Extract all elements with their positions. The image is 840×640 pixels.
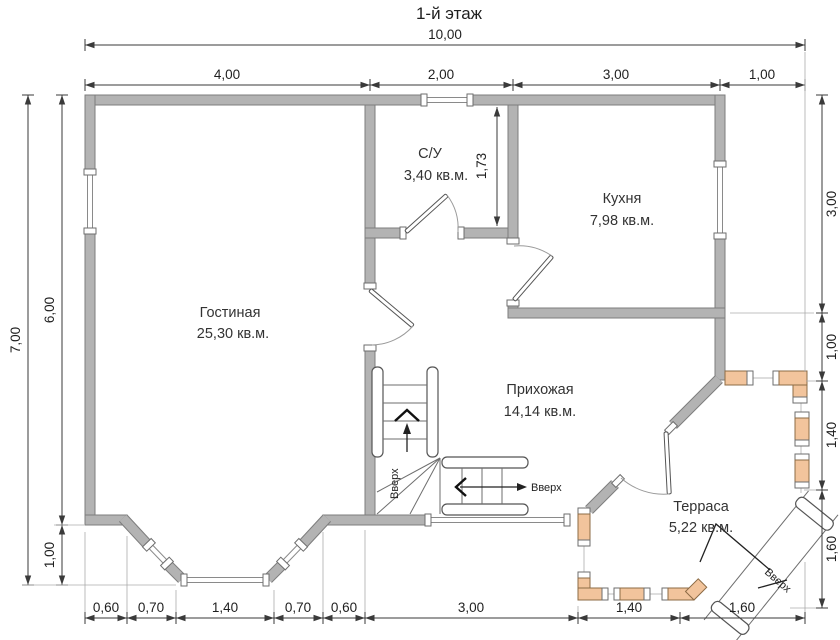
plan-title: 1-й этаж — [416, 4, 483, 23]
dim-bottom-2: 0,70 — [138, 600, 164, 615]
room-kitchen-name: Кухня — [603, 191, 642, 207]
dim-left-1: 6,00 — [42, 297, 57, 323]
room-terrace-area: 5,22 кв.м. — [669, 520, 733, 536]
dim-bottom-6: 3,00 — [458, 600, 484, 615]
dim-right-2: 1,00 — [824, 334, 839, 360]
stairs-up-label-1: Вверх — [389, 468, 401, 499]
room-hall-area: 14,14 кв.м. — [504, 404, 576, 420]
room-terrace-name: Терраса — [673, 499, 730, 515]
dim-right-3: 1,40 — [824, 422, 839, 448]
dim-bottom-3: 1,40 — [212, 600, 238, 615]
room-wc-name: С/У — [418, 146, 443, 162]
dim-top-2: 2,00 — [428, 67, 454, 82]
dim-left-2: 1,00 — [42, 542, 57, 568]
dim-wc-inner: 1,73 — [474, 153, 489, 179]
dim-top-total: 10,00 — [428, 27, 462, 42]
dim-bottom-1: 0,60 — [93, 600, 119, 615]
dim-top-3: 3,00 — [603, 67, 629, 82]
dim-top-1: 4,00 — [214, 67, 240, 82]
floor-plan: 1-й этаж — [0, 0, 840, 640]
dim-bottom-5: 0,60 — [331, 600, 357, 615]
dim-left-total: 7,00 — [8, 327, 23, 353]
room-hall-name: Прихожая — [506, 382, 573, 398]
dim-bottom-7: 1,40 — [616, 600, 642, 615]
dim-top-4: 1,00 — [749, 67, 775, 82]
room-kitchen-area: 7,98 кв.м. — [590, 213, 654, 229]
dim-bottom-4: 0,70 — [285, 600, 311, 615]
room-wc-area: 3,40 кв.м. — [404, 168, 468, 184]
room-living-name: Гостиная — [200, 305, 261, 321]
dim-bottom-8: 1,60 — [729, 600, 755, 615]
dim-right-4: 1,60 — [824, 536, 839, 562]
room-living-area: 25,30 кв.м. — [197, 326, 269, 342]
dim-right-1: 3,00 — [824, 191, 839, 217]
stairs-up-label-2: Вверх — [531, 482, 562, 494]
